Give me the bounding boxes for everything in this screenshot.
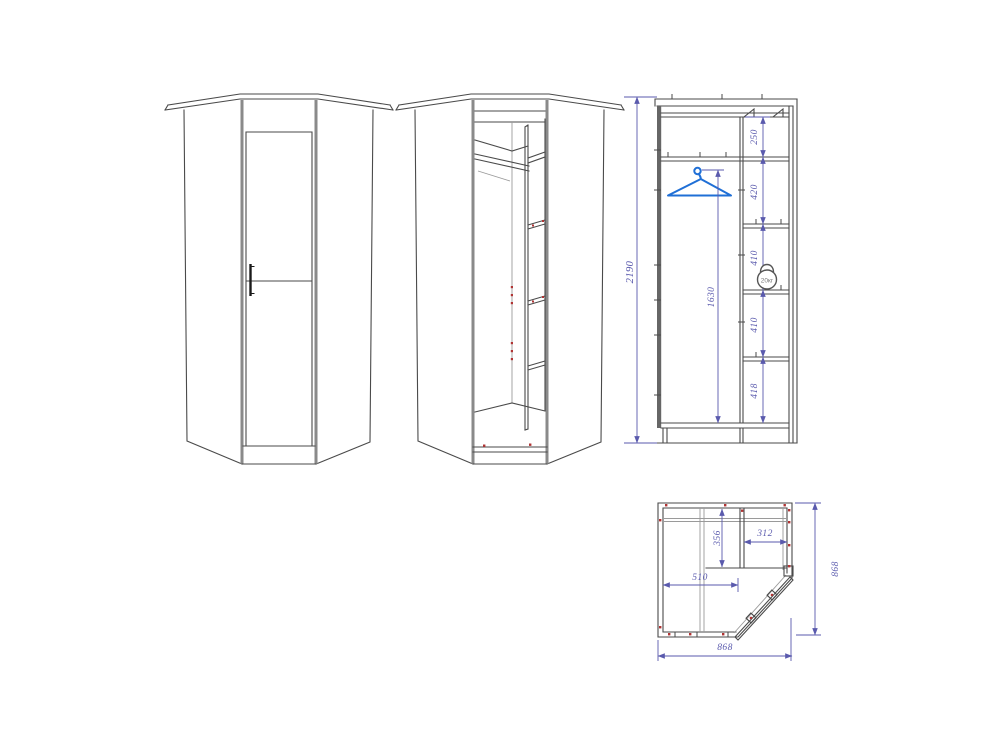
dim-outer-width: 868 xyxy=(717,643,732,653)
dim-bottom-gap: 418 xyxy=(750,383,760,398)
clothes-hanger-icon xyxy=(668,168,731,196)
kettlebell-20kg-icon: 20кг xyxy=(758,265,777,290)
top-fascia xyxy=(475,111,545,122)
technical-drawing-canvas: 2190 1630 250 420 410 410 418 20кг xyxy=(0,0,1000,750)
dim-shelf-depth: 356 xyxy=(713,530,723,546)
dim-hanging-gap: 420 xyxy=(750,184,760,199)
top-shelf xyxy=(475,140,545,171)
dim-shelf-gap-lower: 410 xyxy=(750,317,760,332)
drawing-page: 2190 1630 250 420 410 410 418 20кг xyxy=(0,0,1000,750)
plan-view: 356 312 510 868 868 xyxy=(658,503,841,661)
carcass xyxy=(654,94,797,443)
side-shelves xyxy=(528,220,545,370)
right-wall xyxy=(789,99,797,443)
side-panels xyxy=(415,110,604,464)
cornice xyxy=(396,94,624,110)
hanging-rod xyxy=(478,171,510,181)
dim-shelf-gap-upper: 410 xyxy=(750,250,760,265)
fastener-marks xyxy=(659,504,790,635)
dim-total-height: 2190 xyxy=(625,260,636,283)
side-shelves xyxy=(743,224,789,361)
kettlebell-load-label: 20кг xyxy=(761,278,774,285)
plinth xyxy=(473,447,547,464)
carcass-edges xyxy=(242,100,316,464)
dim-outer-depth: 868 xyxy=(831,561,841,576)
front-view-open xyxy=(396,94,624,464)
top-fascia xyxy=(661,113,789,117)
dim-top-gap: 250 xyxy=(750,129,760,144)
cornice xyxy=(165,94,393,110)
section-view: 2190 1630 250 420 410 410 418 20кг xyxy=(624,94,797,443)
dim-shelf-inner-width: 312 xyxy=(756,529,772,539)
plinth xyxy=(655,428,797,443)
door xyxy=(242,132,316,464)
fastener-marks xyxy=(483,220,544,447)
bottom-panel xyxy=(661,423,789,428)
front-view-closed xyxy=(165,94,393,464)
interior xyxy=(473,111,547,464)
left-wall xyxy=(657,106,661,428)
walls xyxy=(658,503,792,637)
dim-rod-height: 1630 xyxy=(707,287,717,308)
door-handle xyxy=(251,264,255,296)
dim-left-inner-width: 510 xyxy=(692,573,707,583)
bottom-panel xyxy=(475,403,545,412)
section-dimensions: 2190 1630 250 420 410 410 418 xyxy=(624,97,770,443)
full-width-shelf xyxy=(661,157,789,161)
side-panels xyxy=(184,110,373,464)
divider xyxy=(740,117,743,423)
